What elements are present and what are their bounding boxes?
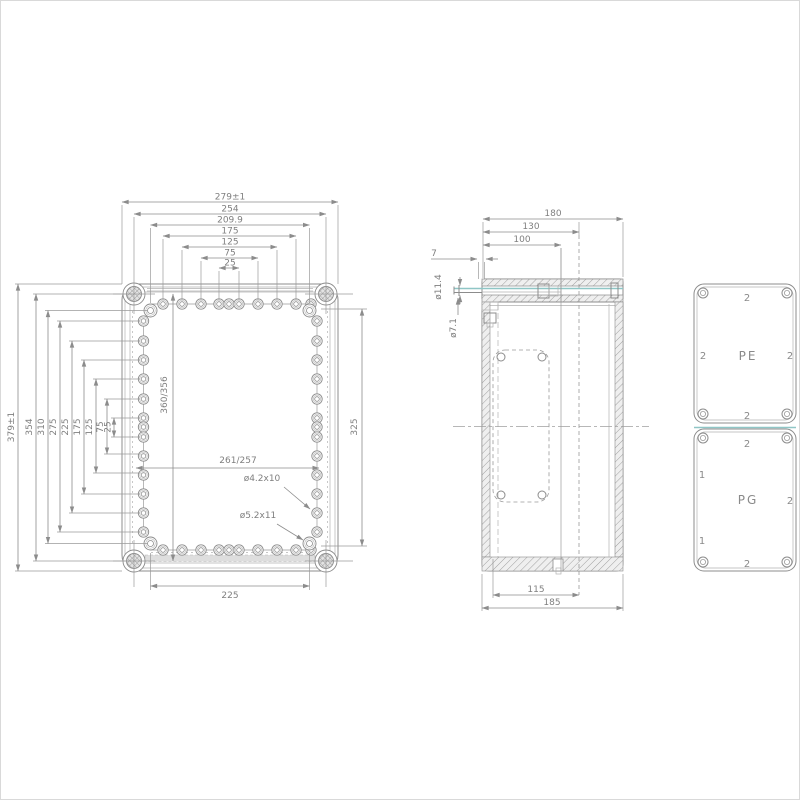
hole-row-lines — [144, 304, 318, 550]
dim-label-209: 209.9 — [217, 216, 243, 226]
lid-latch-inner — [549, 286, 558, 296]
enclosure-drawing: 279±1 254 209.9 175 125 75 25 379±1 354 … — [1, 1, 800, 801]
body-outline — [482, 302, 623, 571]
flange-serration — [133, 311, 328, 553]
pg-label: PG — [738, 493, 759, 507]
dim-label-354: 354 — [25, 418, 35, 435]
dim-label-125l: 125 — [85, 418, 95, 435]
side-view: ø11.4 ø7.1 1 — [431, 209, 649, 611]
right-wall — [615, 302, 623, 557]
flange-knockout — [493, 350, 549, 502]
dim-label-7: 7 — [431, 249, 437, 259]
flange-holes — [497, 353, 546, 499]
dim-label-175t: 175 — [221, 227, 238, 237]
left-wall — [482, 302, 490, 557]
pe-count-right: 2 — [787, 351, 793, 362]
hinge-band — [145, 555, 315, 562]
dim-label-25t: 25 — [224, 259, 235, 269]
pe-count-top: 2 — [744, 293, 750, 304]
pg-count-right: 2 — [787, 496, 793, 507]
bottom-wall — [482, 557, 623, 571]
flange-hole — [538, 353, 546, 361]
lid-seam-top — [147, 289, 313, 292]
panel-screw — [698, 433, 708, 443]
panel-screw — [698, 288, 708, 298]
perimeter-holes — [138, 299, 322, 555]
note-hole-large: ø5.2x11 — [240, 511, 277, 521]
panel-screw — [698, 409, 708, 419]
pg-count-bottom: 2 — [744, 559, 750, 570]
dim-label-75t: 75 — [224, 249, 235, 259]
panel-screw — [782, 409, 792, 419]
side-top-extension-lines — [479, 222, 624, 302]
dim-label-275: 275 — [49, 418, 59, 435]
enclosure-outline-inner — [130, 292, 330, 563]
dim-label-379: 379±1 — [7, 412, 17, 442]
lid-top-wall — [482, 279, 623, 286]
note-hole-small: ø4.2x10 — [244, 474, 281, 484]
technical-drawing-page: 279±1 254 209.9 175 125 75 25 379±1 354 … — [0, 0, 800, 800]
dim-label-175l: 175 — [73, 418, 83, 435]
dim-label-100: 100 — [513, 235, 530, 245]
dim-label-360-356: 360/356 — [160, 376, 170, 414]
dim-label-185: 185 — [543, 598, 560, 608]
pe-count-bottom: 2 — [744, 411, 750, 422]
dim-label-25l: 25 — [104, 421, 114, 432]
pg-count-upper-left: 1 — [699, 470, 705, 481]
pg-count-lower-left: 1 — [699, 536, 705, 547]
dim-label-180: 180 — [544, 209, 561, 219]
dim-label-125t: 125 — [221, 238, 238, 248]
dim-label-130: 130 — [522, 222, 539, 232]
dim-label-225l: 225 — [61, 418, 71, 435]
dim-label-115: 115 — [527, 585, 544, 595]
enclosure-outline-mid — [125, 287, 335, 568]
pe-panel: 2 2 PE 2 2 — [694, 284, 796, 423]
screw-shaft-end — [454, 285, 459, 296]
flange-hole — [538, 491, 546, 499]
dim-label-261-257: 261/257 — [219, 456, 256, 466]
pg-panel: 2 1 PG 2 1 2 — [694, 428, 796, 572]
flange-hole — [497, 353, 505, 361]
enclosure-outline-outer — [122, 284, 338, 571]
dim-label-225b: 225 — [221, 591, 238, 601]
panel-screw — [782, 557, 792, 567]
panel-screw — [782, 433, 792, 443]
right-extension-lines — [321, 309, 367, 546]
dim-label-screw-outer: ø11.4 — [434, 274, 444, 300]
dim-label-screw-inner: ø7.1 — [449, 318, 459, 338]
dim-label-279: 279±1 — [215, 193, 245, 203]
dim-label-325: 325 — [350, 418, 360, 435]
panel-screw — [782, 288, 792, 298]
pe-count-left: 2 — [700, 351, 706, 362]
pe-label: PE — [739, 349, 758, 363]
front-view: 279±1 254 209.9 175 125 75 25 379±1 354 … — [7, 193, 367, 602]
panel-screw — [698, 557, 708, 567]
bottom-latch — [553, 559, 563, 571]
dim-label-254: 254 — [221, 205, 238, 215]
leader-hole-small — [284, 487, 310, 509]
dim-label-310: 310 — [37, 418, 47, 435]
pg-count-top: 2 — [744, 439, 750, 450]
corner-screws — [123, 283, 337, 572]
leader-hole-large — [277, 524, 303, 540]
